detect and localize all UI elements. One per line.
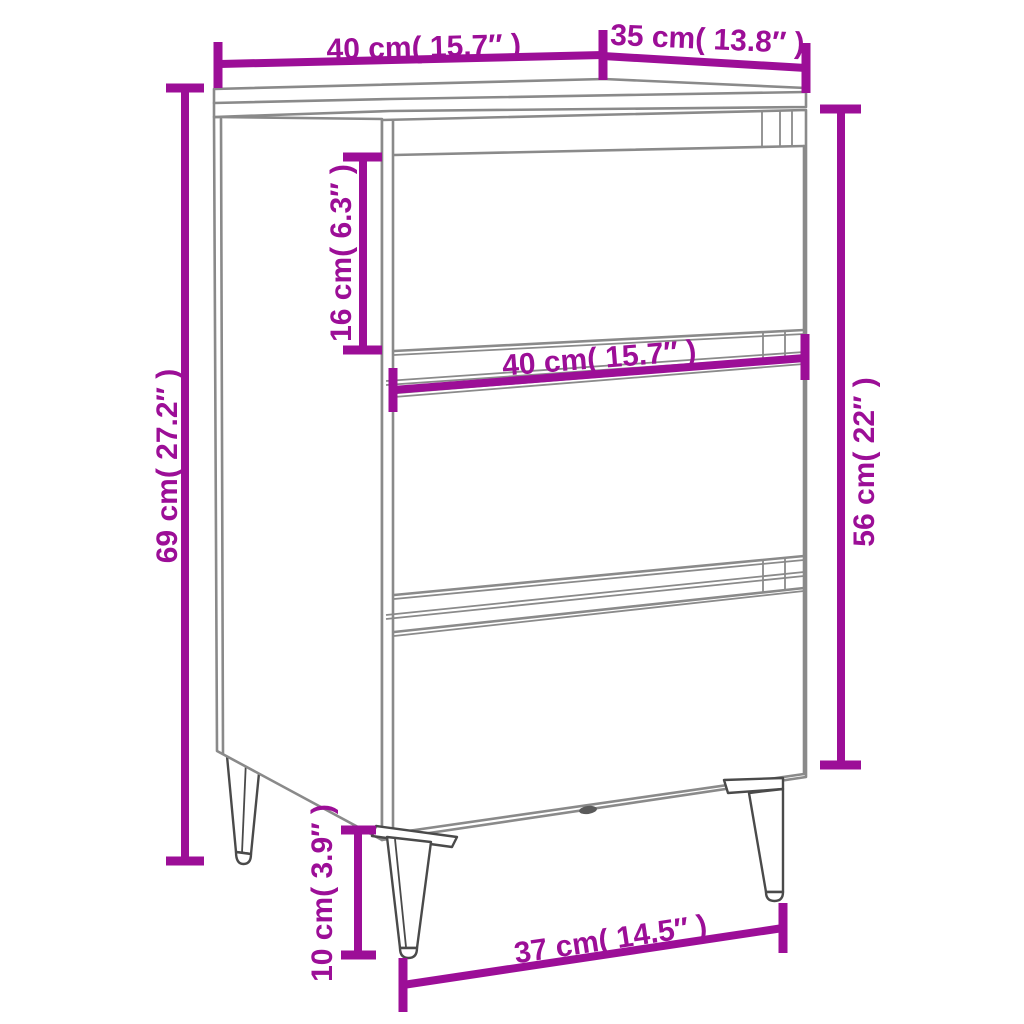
front-face	[382, 110, 806, 840]
dimension-overall-height: 69 cm( 27.2″ )	[151, 88, 204, 861]
diagram-canvas: 40 cm( 15.7″ ) 35 cm( 13.8″ ) 69 cm( 27.…	[0, 0, 1024, 1024]
front-right-leg	[724, 778, 783, 901]
dimension-body-height: 56 cm( 22″ )	[820, 109, 881, 765]
dimension-label-drawer-height: 16 cm( 6.3″ )	[325, 164, 358, 342]
front-left-leg-foot	[400, 948, 417, 958]
cabinet-drawing	[214, 79, 806, 958]
dimension-label-bottom-depth: 37 cm( 14.5″ )	[512, 909, 709, 970]
back-left-leg-foot	[236, 852, 251, 864]
dimension-top-width: 40 cm( 15.7″ )	[218, 28, 603, 88]
dimension-label-overall-height: 69 cm( 27.2″ )	[151, 369, 184, 563]
front-right-leg-foot	[766, 892, 783, 901]
dimension-diagram: 40 cm( 15.7″ ) 35 cm( 13.8″ ) 69 cm( 27.…	[0, 0, 1024, 1024]
front-left-leg-body	[387, 837, 431, 948]
dimension-label-leg-height: 10 cm( 3.9″ )	[306, 804, 339, 982]
front-face-outline	[382, 110, 806, 840]
front-left-leg	[372, 826, 457, 958]
dimension-label-top-depth: 35 cm( 13.8″ )	[610, 19, 806, 60]
dimension-bottom-depth: 37 cm( 14.5″ )	[403, 903, 783, 1012]
dimension-label-body-height: 56 cm( 22″ )	[848, 377, 881, 546]
dimension-leg-height: 10 cm( 3.9″ )	[306, 804, 376, 982]
dimension-label-top-width: 40 cm( 15.7″ )	[326, 28, 521, 66]
front-right-leg-body	[749, 789, 783, 892]
